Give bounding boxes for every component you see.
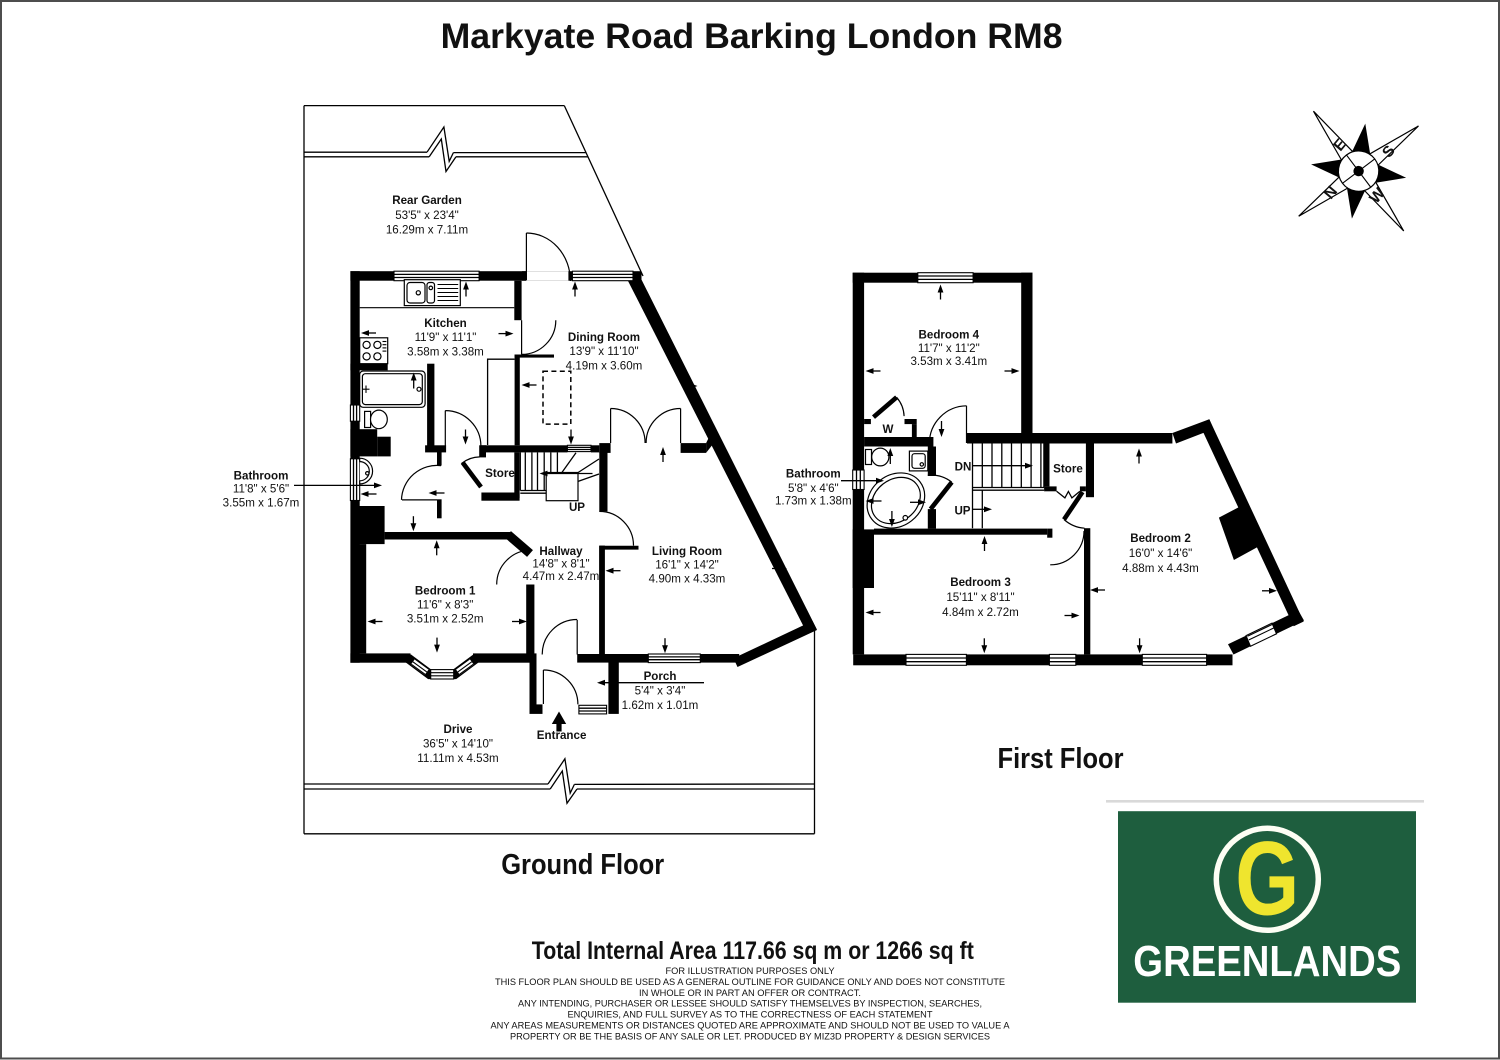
svg-text:Drive: Drive <box>443 723 473 736</box>
svg-text:Ground Floor: Ground Floor <box>501 849 664 881</box>
svg-text:Bedroom 2: Bedroom 2 <box>1130 532 1191 545</box>
svg-text:DN: DN <box>955 461 972 474</box>
svg-text:11'9" x 11'1": 11'9" x 11'1" <box>415 331 477 344</box>
svg-text:ENQUIRIES, AND FULL SURVEY AS: ENQUIRIES, AND FULL SURVEY AS TO THE COR… <box>568 1010 933 1021</box>
svg-text:Living Room: Living Room <box>652 545 722 558</box>
svg-text:11'6" x 8'3": 11'6" x 8'3" <box>417 599 473 612</box>
svg-text:Bedroom 4: Bedroom 4 <box>919 328 980 341</box>
svg-text:1.62m x 1.01m: 1.62m x 1.01m <box>622 699 699 712</box>
svg-text:4.88m x 4.43m: 4.88m x 4.43m <box>1122 562 1199 575</box>
svg-text:Entrance: Entrance <box>537 729 587 742</box>
svg-text:Bedroom 3: Bedroom 3 <box>950 576 1011 589</box>
svg-text:Porch: Porch <box>644 670 677 683</box>
svg-text:15'11" x 8'11": 15'11" x 8'11" <box>946 591 1014 604</box>
svg-text:G: G <box>1235 821 1299 938</box>
svg-text:4.19m x 3.60m: 4.19m x 3.60m <box>566 360 643 373</box>
svg-text:ANY AREAS MEASUREMENTS OR DIST: ANY AREAS MEASUREMENTS OR DISTANCES QUOT… <box>491 1021 1011 1032</box>
svg-text:3.53m x 3.41m: 3.53m x 3.41m <box>910 355 987 368</box>
svg-text:Rear Garden: Rear Garden <box>392 194 462 207</box>
svg-text:GREENLANDS: GREENLANDS <box>1133 937 1401 986</box>
svg-text:THIS FLOOR PLAN SHOULD BE USED: THIS FLOOR PLAN SHOULD BE USED AS A GENE… <box>495 977 1005 988</box>
svg-text:Bathroom: Bathroom <box>786 467 841 480</box>
svg-text:11.11m x 4.53m: 11.11m x 4.53m <box>417 752 498 765</box>
svg-text:16.29m x 7.11m: 16.29m x 7.11m <box>386 224 468 237</box>
svg-text:Store: Store <box>1053 463 1083 476</box>
svg-text:5'4" x 3'4": 5'4" x 3'4" <box>635 685 686 698</box>
svg-text:FOR ILLUSTRATION PURPOSES ONLY: FOR ILLUSTRATION PURPOSES ONLY <box>666 966 836 977</box>
svg-text:W: W <box>883 423 894 436</box>
svg-text:Store: Store <box>485 467 515 480</box>
svg-text:53'5" x 23'4": 53'5" x 23'4" <box>395 209 459 222</box>
svg-text:Bedroom 1: Bedroom 1 <box>415 585 476 598</box>
svg-text:4.47m x 2.47m: 4.47m x 2.47m <box>523 570 600 583</box>
svg-text:4.84m x 2.72m: 4.84m x 2.72m <box>942 606 1019 619</box>
svg-text:UP: UP <box>569 501 585 514</box>
svg-text:Bathroom: Bathroom <box>234 470 289 483</box>
svg-text:Kitchen: Kitchen <box>424 317 467 330</box>
svg-text:UP: UP <box>954 505 970 518</box>
svg-text:Total Internal Area 117.66 sq: Total Internal Area 117.66 sq m or 1266 … <box>532 937 975 965</box>
svg-text:13'9" x 11'10": 13'9" x 11'10" <box>569 345 638 358</box>
svg-text:First Floor: First Floor <box>998 743 1124 775</box>
svg-text:3.51m x 2.52m: 3.51m x 2.52m <box>407 613 484 626</box>
svg-text:11'7" x 11'2": 11'7" x 11'2" <box>918 342 980 355</box>
svg-text:ANY INTENDING, PURCHASER OR LE: ANY INTENDING, PURCHASER OR LESSEE SHOUL… <box>518 999 982 1010</box>
svg-text:14'8" x 8'1": 14'8" x 8'1" <box>532 557 589 570</box>
svg-text:1.73m x 1.38m: 1.73m x 1.38m <box>775 495 852 508</box>
svg-text:16'1" x 14'2": 16'1" x 14'2" <box>655 559 719 572</box>
svg-text:Markyate Road Barking London R: Markyate Road Barking London RM8 <box>441 16 1063 56</box>
svg-text:3.55m x 1.67m: 3.55m x 1.67m <box>223 496 300 509</box>
svg-text:5'8" x 4'6": 5'8" x 4'6" <box>788 482 839 495</box>
svg-text:IN WHOLE OR IN PART AN OFFER O: IN WHOLE OR IN PART AN OFFER OR CONTRACT… <box>639 988 861 999</box>
svg-text:PROPERTY OR BE THE BASIS OF AN: PROPERTY OR BE THE BASIS OF ANY SALE OR … <box>510 1031 990 1042</box>
svg-text:11'8" x 5'6": 11'8" x 5'6" <box>233 483 289 496</box>
svg-text:16'0" x 14'6": 16'0" x 14'6" <box>1129 547 1193 560</box>
svg-text:Hallway: Hallway <box>539 545 583 558</box>
svg-text:3.58m x 3.38m: 3.58m x 3.38m <box>407 346 484 359</box>
svg-text:Dining Room: Dining Room <box>568 331 640 344</box>
svg-text:36'5" x 14'10": 36'5" x 14'10" <box>423 738 493 751</box>
svg-text:4.90m x 4.33m: 4.90m x 4.33m <box>649 573 726 586</box>
